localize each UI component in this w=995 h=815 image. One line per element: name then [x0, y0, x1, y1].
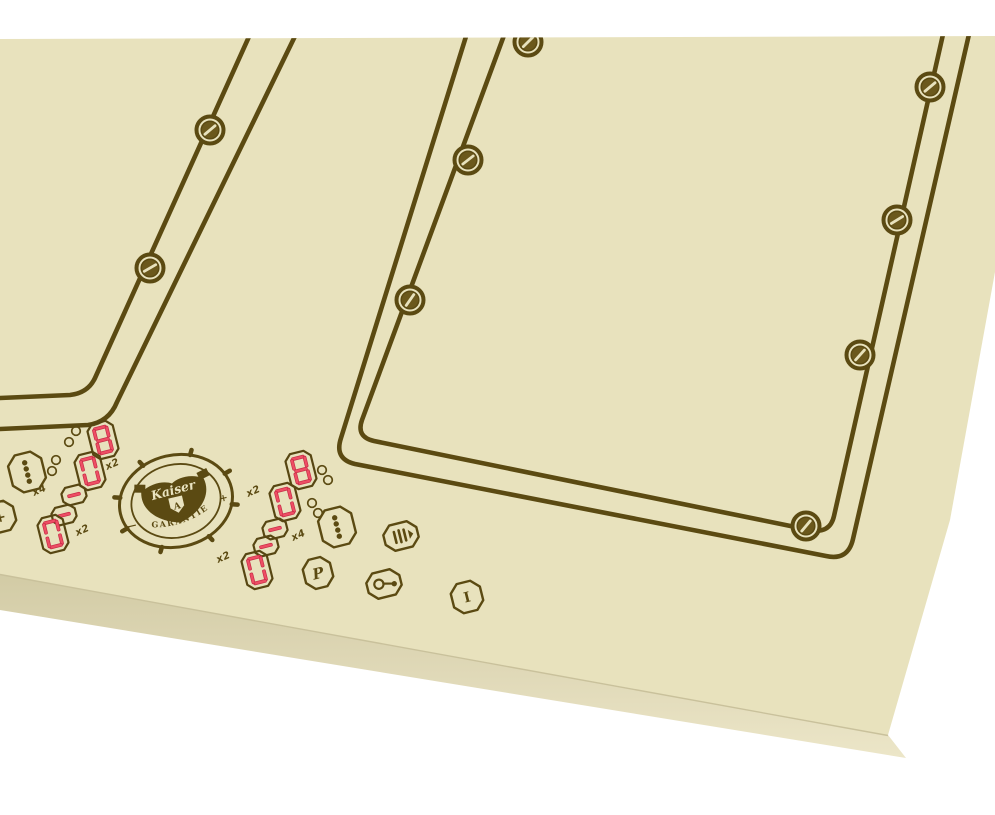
screw-icon [137, 255, 164, 282]
screw-icon [884, 207, 911, 234]
screw-icon [515, 29, 542, 56]
screw-icon [197, 117, 224, 144]
screw-icon [793, 513, 820, 540]
screw-icon [455, 147, 482, 174]
screw-icon [847, 342, 874, 369]
cooktop-render: x2 x4 x2 [0, 0, 995, 815]
screw-icon [917, 74, 944, 101]
product-photo-canvas: x2 x4 x2 [0, 0, 995, 815]
screw-icon [397, 287, 424, 314]
